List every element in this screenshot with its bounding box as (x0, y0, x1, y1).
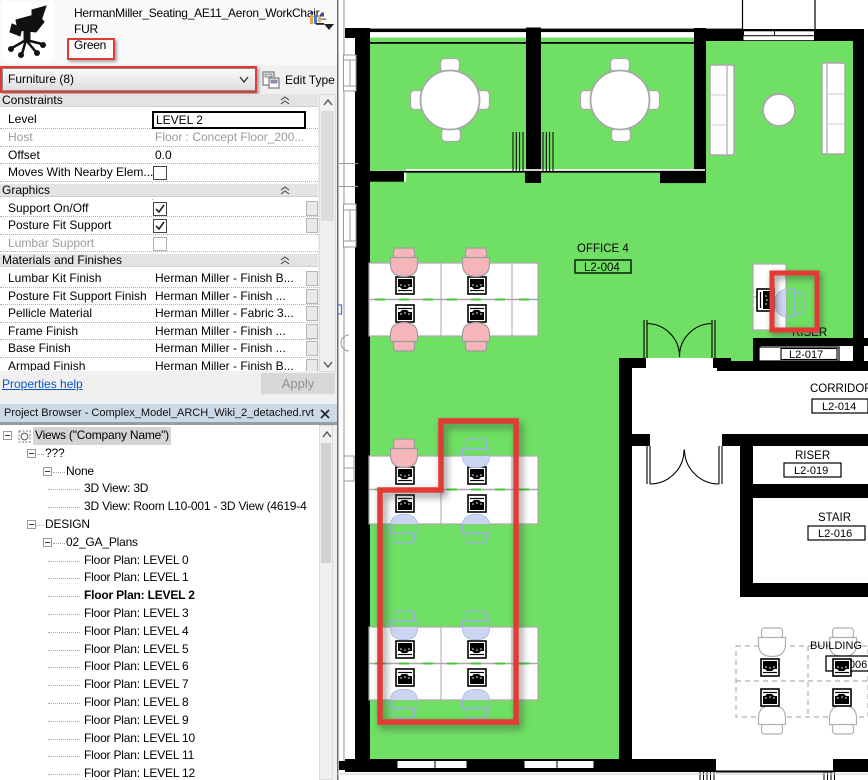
svg-text:OFFICE 4: OFFICE 4 (577, 243, 629, 255)
svg-text:L2-004: L2-004 (584, 262, 620, 274)
svg-text:L2-019: L2-019 (794, 465, 828, 477)
svg-text:L2-014: L2-014 (822, 401, 856, 413)
svg-text:CORRIDOR: CORRIDOR (810, 383, 868, 395)
svg-text:BUILDING: BUILDING (810, 640, 862, 652)
svg-text:L2-017: L2-017 (789, 349, 823, 361)
svg-text:STAIR: STAIR (818, 512, 851, 524)
svg-text:RISER: RISER (795, 450, 830, 462)
svg-text:L2-016: L2-016 (818, 528, 852, 540)
